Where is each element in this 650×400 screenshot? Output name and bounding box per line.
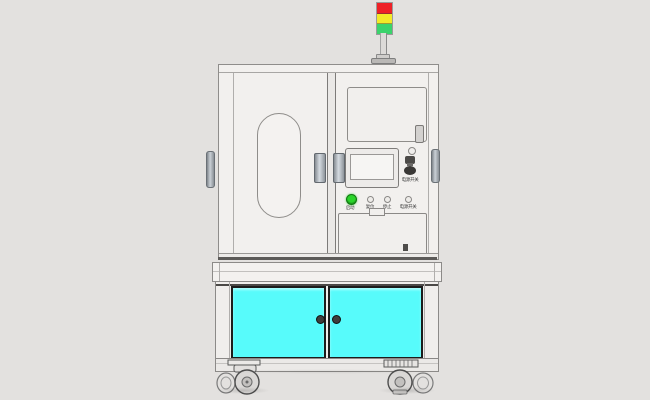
power-switch-button	[405, 196, 412, 203]
access-panel-tab	[369, 208, 385, 216]
machine-rendering: 电源开关 启动 复位 停止 电源开关	[0, 0, 650, 400]
tabletop-endcap-left	[219, 263, 220, 281]
shadow-right	[378, 387, 436, 394]
indicator-lamp	[408, 147, 416, 155]
start-button-label: 启动	[339, 205, 361, 210]
estop-label: 电源开关	[395, 177, 425, 182]
hmi-display	[345, 148, 399, 188]
cabinet-bottom-edge	[218, 257, 437, 260]
upper-viewing-window	[347, 87, 427, 142]
emergency-stop-button	[404, 166, 416, 175]
right-stile-line	[428, 73, 429, 259]
red-lamp	[377, 3, 392, 14]
side-handle-left	[206, 151, 215, 188]
tabletop-line	[213, 271, 441, 272]
right-door-handle	[333, 153, 345, 183]
oval-viewing-window	[257, 113, 301, 218]
side-handle-right	[431, 149, 440, 183]
door-knob-right	[332, 315, 341, 324]
window-handle	[415, 125, 424, 143]
yellow-lamp	[377, 14, 392, 25]
tabletop	[212, 262, 442, 282]
left-stile-line	[233, 73, 234, 257]
stop-button	[384, 196, 391, 203]
left-door-handle	[314, 153, 326, 183]
shadow-under-cabinet	[213, 369, 439, 374]
shadow-left	[216, 387, 270, 394]
power-switch-label: 电源开关	[394, 204, 422, 209]
signal-tower-light	[376, 2, 393, 35]
start-button	[346, 194, 357, 205]
reset-button	[367, 196, 374, 203]
access-panel-latch	[403, 244, 408, 251]
access-panel	[338, 213, 427, 256]
tabletop-endcap-right	[434, 263, 435, 281]
cabinet-door-left	[231, 286, 326, 359]
hmi-screen	[350, 154, 394, 180]
door-knob-left	[316, 315, 325, 324]
cabinet-door-right	[328, 286, 423, 359]
upper-cabinet: 电源开关 启动 复位 停止 电源开关	[218, 64, 439, 260]
